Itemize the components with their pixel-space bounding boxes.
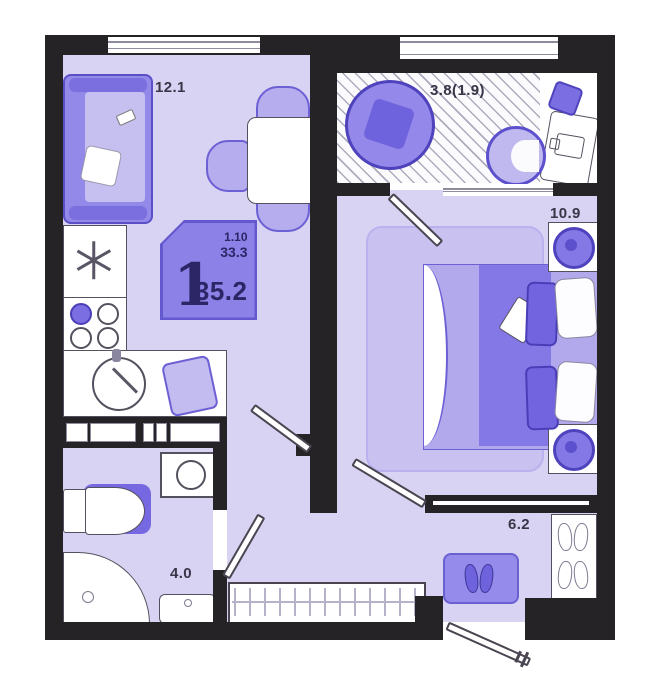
balcony-area-label: 3.8(1.9) (430, 82, 485, 99)
bedroom-area-label: 10.9 (550, 205, 581, 222)
bathroom-wall-upper (213, 448, 227, 510)
sink-faucet-icon (184, 599, 192, 607)
balcony-railing-window (400, 37, 558, 59)
rail-bar (232, 601, 418, 603)
wall-duct (170, 423, 220, 442)
wardrobe (228, 582, 426, 626)
balcony-stool (486, 126, 546, 186)
shoe-icon (557, 522, 574, 551)
kitchen-sink-counter (63, 350, 227, 417)
stove (63, 297, 127, 352)
entry-wall-stub-right (525, 598, 597, 624)
faucet-icon (112, 349, 121, 362)
dining-chair-left (206, 140, 250, 192)
round-armchair (345, 80, 435, 170)
hallway-area-label: 6.2 (508, 516, 530, 533)
outer-wall-left (45, 35, 63, 640)
folding-table-icon (75, 242, 113, 280)
pillow (525, 365, 559, 430)
sofa-pillow (80, 145, 123, 188)
cutting-board (161, 355, 219, 418)
toilet-bowl (85, 487, 145, 535)
wall-duct (90, 423, 136, 442)
bathroom-area-label: 4.0 (170, 565, 192, 582)
drain-icon (82, 591, 94, 603)
living-room-window (108, 37, 260, 53)
bed-foot-fold (424, 265, 448, 446)
living-room-area-label: 12.1 (155, 79, 186, 96)
total-area-number: 35.2 (195, 276, 248, 307)
laptop-key-icon (549, 138, 561, 151)
shoe-icon (573, 522, 590, 551)
shoe-icon (478, 563, 495, 594)
sofa-armrest-top (69, 78, 147, 92)
kitchen-sink-icon (92, 357, 146, 411)
stool-seat (511, 140, 539, 172)
shoe-rack (551, 514, 597, 602)
wall-duct (66, 423, 88, 442)
burner-icon (70, 327, 92, 349)
washer-drum-icon (176, 460, 206, 490)
shoe-icon (463, 563, 480, 594)
wall-duct (156, 423, 167, 442)
sofa (63, 74, 153, 224)
badge-line1: 1.10 (195, 230, 248, 244)
bedroom-balcony-window (443, 184, 553, 196)
balcony-bedroom-wall-left (337, 183, 390, 196)
plant-icon (553, 429, 595, 471)
door-handle-icon (520, 652, 529, 668)
door-handle-icon (514, 651, 522, 663)
plant-icon (553, 227, 595, 269)
badge-line2: 33.3 (195, 244, 248, 260)
burner-icon (97, 303, 119, 325)
armchair-cushion (363, 98, 416, 151)
wall-slit (433, 501, 589, 505)
shoe-icon (557, 560, 574, 589)
doormat (443, 553, 519, 604)
entry-wall-stub-left (415, 596, 443, 624)
balcony-bedroom-wall-right (553, 183, 597, 196)
burner-icon (70, 303, 92, 325)
floor-plan: 1 1.10 33.3 35.2 (0, 0, 660, 690)
outer-wall-right (597, 35, 615, 640)
bedroom-hallway-wall (425, 495, 597, 513)
pillow (554, 277, 598, 340)
pillow (554, 361, 598, 424)
sofa-armrest-bottom (69, 206, 147, 220)
washing-machine (160, 452, 221, 498)
bathroom-sink (159, 594, 216, 624)
bathroom-wall-lower (213, 570, 227, 622)
apartment-info-badge: 1 1.10 33.3 35.2 (160, 220, 257, 320)
burner-icon (97, 327, 119, 349)
shoe-icon (573, 560, 590, 589)
wall-duct (143, 423, 154, 442)
outer-wall-bottom (45, 622, 615, 640)
apartment-info-badge-inner: 1 1.10 33.3 35.2 (163, 223, 255, 318)
central-wall (310, 55, 337, 513)
